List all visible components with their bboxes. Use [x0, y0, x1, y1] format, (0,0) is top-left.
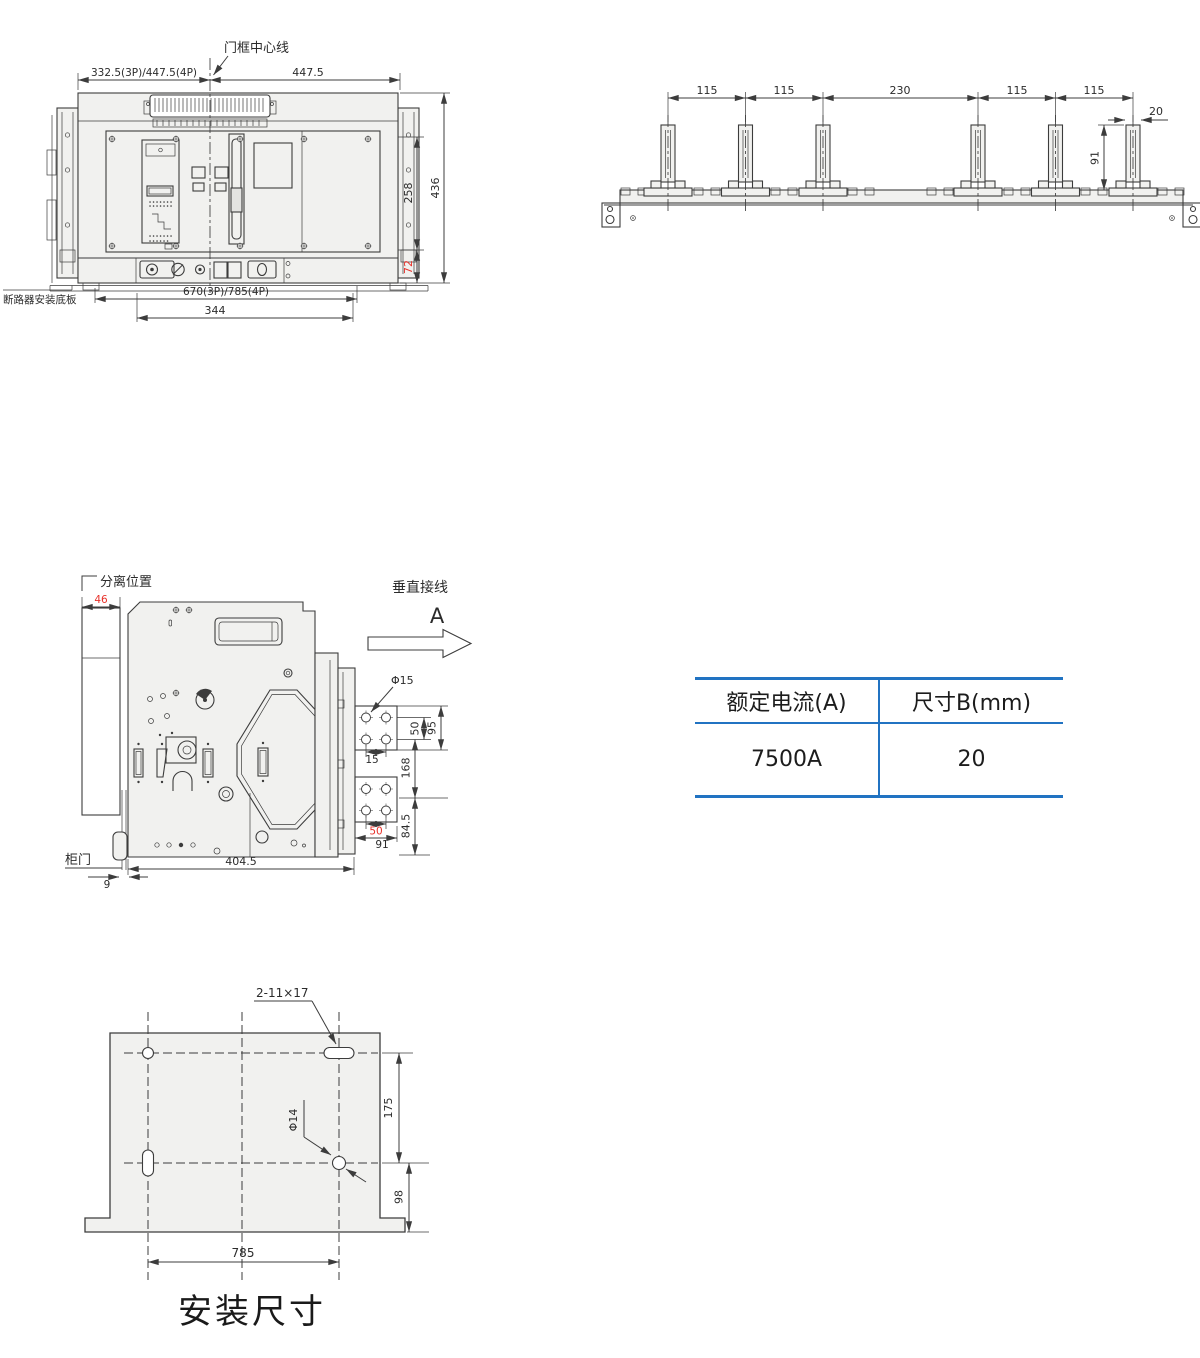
separated-position-label: 分离位置 [100, 574, 152, 590]
dim-hole-pitch-v-label: 50 [409, 722, 422, 736]
dim-base-height-label: 72 [402, 260, 415, 274]
spec-table: 额定电流(A) 尺寸B(mm) 7500A 20 [695, 677, 1063, 798]
dim-separated-label: 46 [94, 594, 108, 606]
dim-hole-offset-label: 15 [365, 754, 378, 766]
dim-total-height-label: 436 [429, 178, 442, 199]
mounting-title: 安装尺寸 [178, 1292, 326, 1332]
view-a-label: A [430, 604, 445, 628]
dim-lower-pad-label: 84.5 [400, 814, 413, 839]
cabinet-door-label: 柜门 [65, 853, 91, 868]
dim-bar-width-label: 20 [1149, 105, 1163, 118]
spec-table-header-row: 额定电流(A) 尺寸B(mm) [695, 680, 1063, 724]
busbar-body [602, 115, 1200, 227]
dim-pitch-5: 115 [1084, 84, 1105, 97]
dim-bar-height-label: 91 [1089, 151, 1102, 165]
dim-inner-width-label: 344 [205, 304, 226, 317]
spec-value-dimension-b: 20 [880, 724, 1063, 795]
spec-header-rated-current: 额定电流(A) [695, 680, 880, 722]
dim-pad-gap-label: 168 [400, 758, 413, 779]
front-view-drawing: 门框中心线 332.5(3P)/447.5(4P) 447.5 436 258 … [3, 41, 450, 322]
dim-base-width-label: 670(3P)/785(4P) [183, 286, 269, 298]
mounting-body [85, 1012, 405, 1280]
dim-pad-height-label: 95 [426, 721, 439, 735]
dim-pad-width-label: 91 [375, 839, 388, 851]
busbar-view-drawing: 115 115 230 115 115 20 91 [602, 84, 1200, 227]
slot-label: 2-11×17 [256, 986, 309, 1000]
dim-door-gap-label: 9 [104, 879, 111, 891]
dim-hole-spacing-label: 175 [382, 1098, 395, 1119]
front-view-body [47, 58, 428, 293]
door-centerline-label: 门框中心线 [224, 41, 289, 56]
dim-width-left-label: 332.5(3P)/447.5(4P) [91, 67, 197, 79]
vertical-wiring-label: 垂直接线 [392, 579, 448, 596]
base-plate-label: 断路器安装底板 [3, 293, 77, 306]
spec-table-data-row: 7500A 20 [695, 724, 1063, 795]
dim-depth-label: 404.5 [225, 855, 257, 868]
spec-header-dimension-b: 尺寸B(mm) [880, 680, 1063, 722]
dim-mount-width-label: 785 [232, 1246, 255, 1260]
dim-width-right-label: 447.5 [292, 66, 324, 79]
side-view-drawing: 分离位置 46 垂直接线 A Φ15 50 95 15 168 84.5 [65, 574, 471, 891]
dim-pitch-4: 115 [1007, 84, 1028, 97]
view-direction-arrow [368, 630, 471, 658]
mount-hole-dia-label: Φ14 [287, 1109, 300, 1132]
dim-pitch-2: 115 [774, 84, 795, 97]
hole-dia-label: Φ15 [391, 674, 414, 687]
side-view-body [82, 602, 397, 870]
dim-bottom-offset-label: 98 [393, 1190, 406, 1204]
dim-panel-height-label: 258 [402, 183, 415, 204]
dim-pitch-1: 115 [697, 84, 718, 97]
dim-pitch-3: 230 [890, 84, 911, 97]
spec-value-rated-current: 7500A [695, 724, 880, 795]
mounting-view-drawing: 2-11×17 Φ14 175 98 785 安装尺寸 [85, 986, 429, 1332]
datasheet-page: 门框中心线 332.5(3P)/447.5(4P) 447.5 436 258 … [0, 0, 1200, 1358]
dim-hole-pitch-h-label: 50 [369, 826, 382, 838]
